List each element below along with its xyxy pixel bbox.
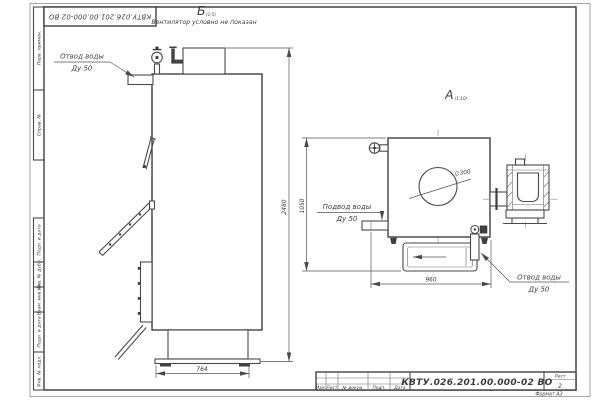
- stamp-podp-data-2: Подп. и дата: [36, 316, 42, 347]
- top-designation-box: КВТУ.026.201.00.000-02 ВО: [44, 7, 156, 26]
- dim-2480: 2480: [281, 199, 288, 214]
- sheet-number: 2: [558, 383, 562, 390]
- side-stamp-column: Перв. примен. Справ. № Подп. и дата Инв.…: [34, 7, 45, 390]
- stamp-perv-primen: Перв. примен.: [36, 31, 42, 66]
- callout-water-inlet-top: Подвод воды Ду 50: [317, 203, 382, 223]
- title-block: Изм. Лист № докум. Подп. Дата КВТУ.026.2…: [316, 372, 576, 397]
- rev-izm-label: Изм.: [316, 385, 326, 391]
- safety-valve-side: [152, 47, 163, 74]
- valve-top-left: [369, 143, 388, 153]
- doc-number-top: КВТУ.026.201.00.000-02 ВО: [48, 13, 151, 21]
- dim-764: 764: [196, 366, 208, 373]
- outlet-pipe-side: [128, 75, 153, 85]
- outlet-side-line1: Отвод воды: [60, 53, 104, 61]
- view-b-scale: (1:5): [206, 12, 216, 17]
- view-b-letter: Б: [197, 3, 206, 18]
- stamp-sprav-n: Справ. №: [36, 114, 42, 137]
- outlet-top-line1: Отвод воды: [517, 274, 561, 282]
- view-a-top: А (1:10) ∅300 Подвод воды Ду 50: [300, 87, 569, 294]
- ash-drawer-top: [403, 243, 477, 271]
- callout-water-outlet-top: Отвод воды Ду 50: [481, 253, 569, 294]
- ash-door-handle: [115, 325, 146, 360]
- fan-note: Вентилятор условно не показан: [151, 19, 256, 26]
- doc-number: КВТУ.026.201.00.000-02 ВО: [401, 378, 552, 388]
- view-a-scale: (1:10): [455, 96, 468, 101]
- format-label: Формат А3: [535, 391, 562, 397]
- fan-assembly: [483, 154, 558, 228]
- foot-pin-left: [390, 238, 397, 244]
- view-b-side: Б (1:5) Вентилятор условно не показан От…: [54, 3, 293, 378]
- flue-box-side: [183, 48, 225, 74]
- outlet-side-line2: Ду 50: [71, 65, 93, 73]
- stamp-inv-podl: Инв. № подл.: [36, 355, 42, 387]
- door-frame: [138, 262, 152, 322]
- stamp-podp-data-1: Подп. и дата: [36, 224, 42, 255]
- stamp-vzam-inv: Взам. инв. №: [36, 284, 42, 315]
- boiler-base-side: [155, 330, 260, 367]
- view-a-letter: А: [444, 87, 454, 102]
- rev-podp-label: Подп.: [372, 385, 385, 391]
- dim-base-width: 764: [156, 366, 249, 379]
- inlet-top-line1: Подвод воды: [323, 203, 372, 211]
- inlet-top-line2: Ду 50: [336, 215, 358, 223]
- callout-water-outlet-side: Отвод воды Ду 50: [54, 53, 134, 78]
- drawing-canvas: Перв. примен. Справ. № Подп. и дата Инв.…: [0, 0, 600, 400]
- rev-list-label: Лист: [326, 385, 338, 391]
- dim-1050: 1050: [300, 198, 306, 213]
- sheet-label: Лист: [554, 374, 566, 380]
- boiler-body-side: [152, 74, 262, 330]
- rev-ndoc-label: № докум.: [341, 385, 363, 391]
- foot-pin-right: [481, 238, 488, 244]
- drawing-sheet: Перв. примен. Справ. № Подп. и дата Инв.…: [0, 0, 600, 400]
- open-door: [99, 201, 155, 256]
- dim-960: 960: [425, 278, 436, 284]
- air-duct: [169, 47, 183, 61]
- inlet-pipe-top: [362, 221, 388, 230]
- flue-circle: [419, 168, 457, 206]
- outlet-top-line2: Ду 50: [528, 286, 550, 294]
